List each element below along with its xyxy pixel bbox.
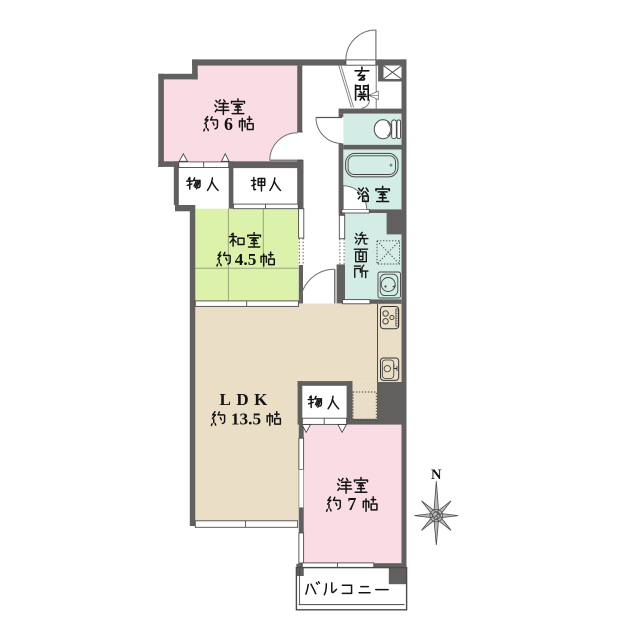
svg-text:13.5: 13.5 [231,410,261,429]
svg-text:6: 6 [224,114,233,134]
svg-text:7: 7 [347,494,356,514]
svg-text:N: N [431,467,442,483]
svg-text:4.5: 4.5 [235,250,257,269]
svg-text:LDK: LDK [220,390,273,409]
